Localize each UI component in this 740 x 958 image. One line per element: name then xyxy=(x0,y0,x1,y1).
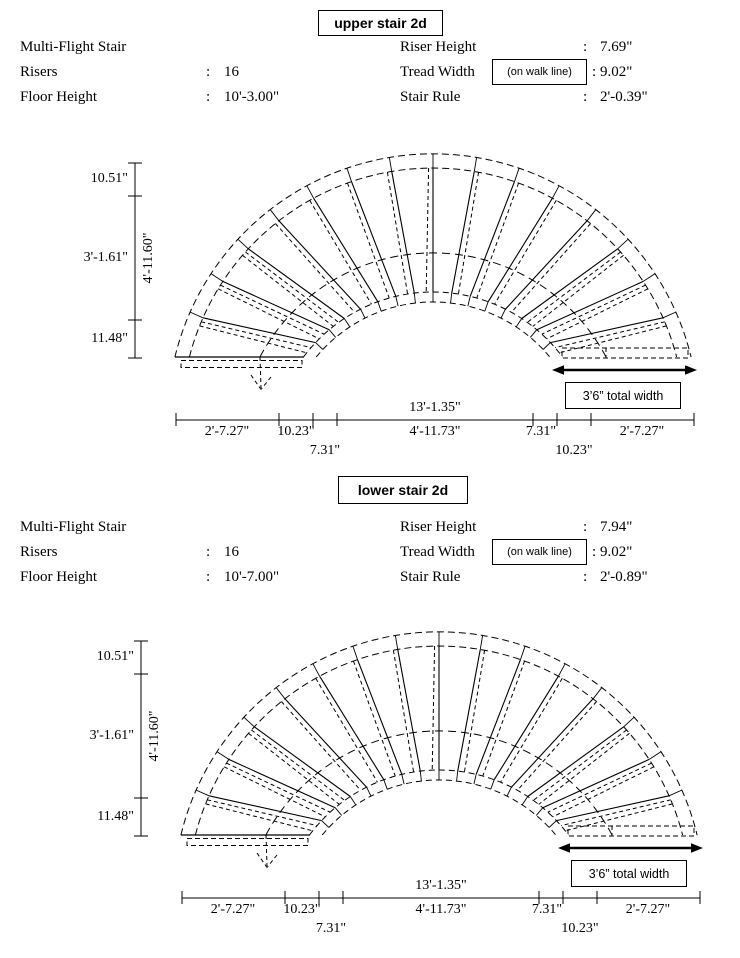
upper-total-width-box: 3’6” total width xyxy=(565,382,681,409)
lower-spec-risers-value: 16 xyxy=(224,543,239,561)
lower-spec-floorheight-label: Floor Height xyxy=(20,568,97,586)
lower-total-width-box: 3’6” total width xyxy=(571,860,687,887)
upper-hdim-r1-3: 7.31" xyxy=(526,424,556,440)
lower-vdim-seg3: 11.48" xyxy=(52,809,134,825)
lower-spec-risers-label: Risers xyxy=(20,543,58,561)
upper-vdim-seg2: 3'-1.61" xyxy=(46,250,128,266)
upper-title: upper stair 2d xyxy=(334,15,427,31)
lower-spec-treadwidth-label: Tread Width xyxy=(400,543,475,561)
upper-spec-treadwidth-value: 9.02" xyxy=(600,63,632,81)
upper-spec-stairrule-value: 2'-0.39" xyxy=(600,88,648,106)
lower-spec-stairrule-label: Stair Rule xyxy=(400,568,460,586)
lower-walkline-note-box: (on walk line) xyxy=(492,539,587,565)
lower-vdim-seg1: 10.51" xyxy=(52,649,134,665)
upper-hdim-r2-1: 10.23" xyxy=(555,443,592,459)
lower-spec-treadwidth-sep: : xyxy=(592,543,596,561)
upper-spec-floorheight-label: Floor Height xyxy=(20,88,97,106)
lower-vdim-seg2: 3'-1.61" xyxy=(52,728,134,744)
lower-title: lower stair 2d xyxy=(358,482,448,498)
upper-vdim-seg3: 11.48" xyxy=(46,331,128,347)
upper-title-box: upper stair 2d xyxy=(318,10,443,36)
lower-spec-riserheight-label: Riser Height xyxy=(400,518,476,536)
lower-hdim-overall: 13'-1.35" xyxy=(415,878,466,894)
lower-hdim-r2-0: 7.31" xyxy=(316,921,346,937)
upper-spec-treadwidth-sep: : xyxy=(592,63,596,81)
lower-spec-floorheight-sep: : xyxy=(206,568,210,586)
upper-spec-name: Multi-Flight Stair xyxy=(20,38,126,56)
upper-spec-riserheight-value: 7.69" xyxy=(600,38,632,56)
lower-hdim-r1-2: 4'-11.73" xyxy=(416,902,467,918)
upper-spec-treadwidth-label: Tread Width xyxy=(400,63,475,81)
upper-hdim-overall: 13'-1.35" xyxy=(409,400,460,416)
lower-walkline-note: (on walk line) xyxy=(507,546,572,558)
upper-spec-risers-value: 16 xyxy=(224,63,239,81)
upper-hdim-r1-2: 4'-11.73" xyxy=(410,424,461,440)
lower-hdim-r1-1: 10.23" xyxy=(283,902,320,918)
upper-total-width-label: 3’6” total width xyxy=(583,389,664,403)
lower-spec-floorheight-value: 10'-7.00" xyxy=(224,568,279,586)
stair-report-page: { "diagrams": [ { "title": "upper stair … xyxy=(0,0,740,958)
lower-title-box: lower stair 2d xyxy=(338,476,468,504)
upper-spec-floorheight-sep: : xyxy=(206,88,210,106)
upper-spec-risers-label: Risers xyxy=(20,63,58,81)
upper-walkline-note-box: (on walk line) xyxy=(492,59,587,85)
upper-vdim-overall: 4'-11.60" xyxy=(141,233,157,284)
lower-spec-risers-sep: : xyxy=(206,543,210,561)
upper-spec-floorheight-value: 10'-3.00" xyxy=(224,88,279,106)
upper-spec-riserheight-sep: : xyxy=(583,38,587,56)
upper-walkline-note: (on walk line) xyxy=(507,66,572,78)
upper-spec-stairrule-sep: : xyxy=(583,88,587,106)
upper-spec-stairrule-label: Stair Rule xyxy=(400,88,460,106)
lower-spec-riserheight-value: 7.94" xyxy=(600,518,632,536)
upper-hdim-r1-4: 2'-7.27" xyxy=(620,424,664,440)
upper-spec-risers-sep: : xyxy=(206,63,210,81)
upper-spec-riserheight-label: Riser Height xyxy=(400,38,476,56)
lower-spec-name: Multi-Flight Stair xyxy=(20,518,126,536)
lower-hdim-r2-1: 10.23" xyxy=(561,921,598,937)
lower-hdim-r1-3: 7.31" xyxy=(532,902,562,918)
lower-spec-stairrule-value: 2'-0.89" xyxy=(600,568,648,586)
lower-spec-riserheight-sep: : xyxy=(583,518,587,536)
lower-vdim-overall: 4'-11.60" xyxy=(147,711,163,762)
lower-hdim-r1-0: 2'-7.27" xyxy=(211,902,255,918)
upper-vdim-seg1: 10.51" xyxy=(46,171,128,187)
lower-spec-treadwidth-value: 9.02" xyxy=(600,543,632,561)
lower-spec-stairrule-sep: : xyxy=(583,568,587,586)
upper-hdim-r1-1: 10.23" xyxy=(277,424,314,440)
lower-total-width-label: 3’6” total width xyxy=(589,867,670,881)
upper-hdim-r1-0: 2'-7.27" xyxy=(205,424,249,440)
upper-hdim-r2-0: 7.31" xyxy=(310,443,340,459)
lower-hdim-r1-4: 2'-7.27" xyxy=(626,902,670,918)
